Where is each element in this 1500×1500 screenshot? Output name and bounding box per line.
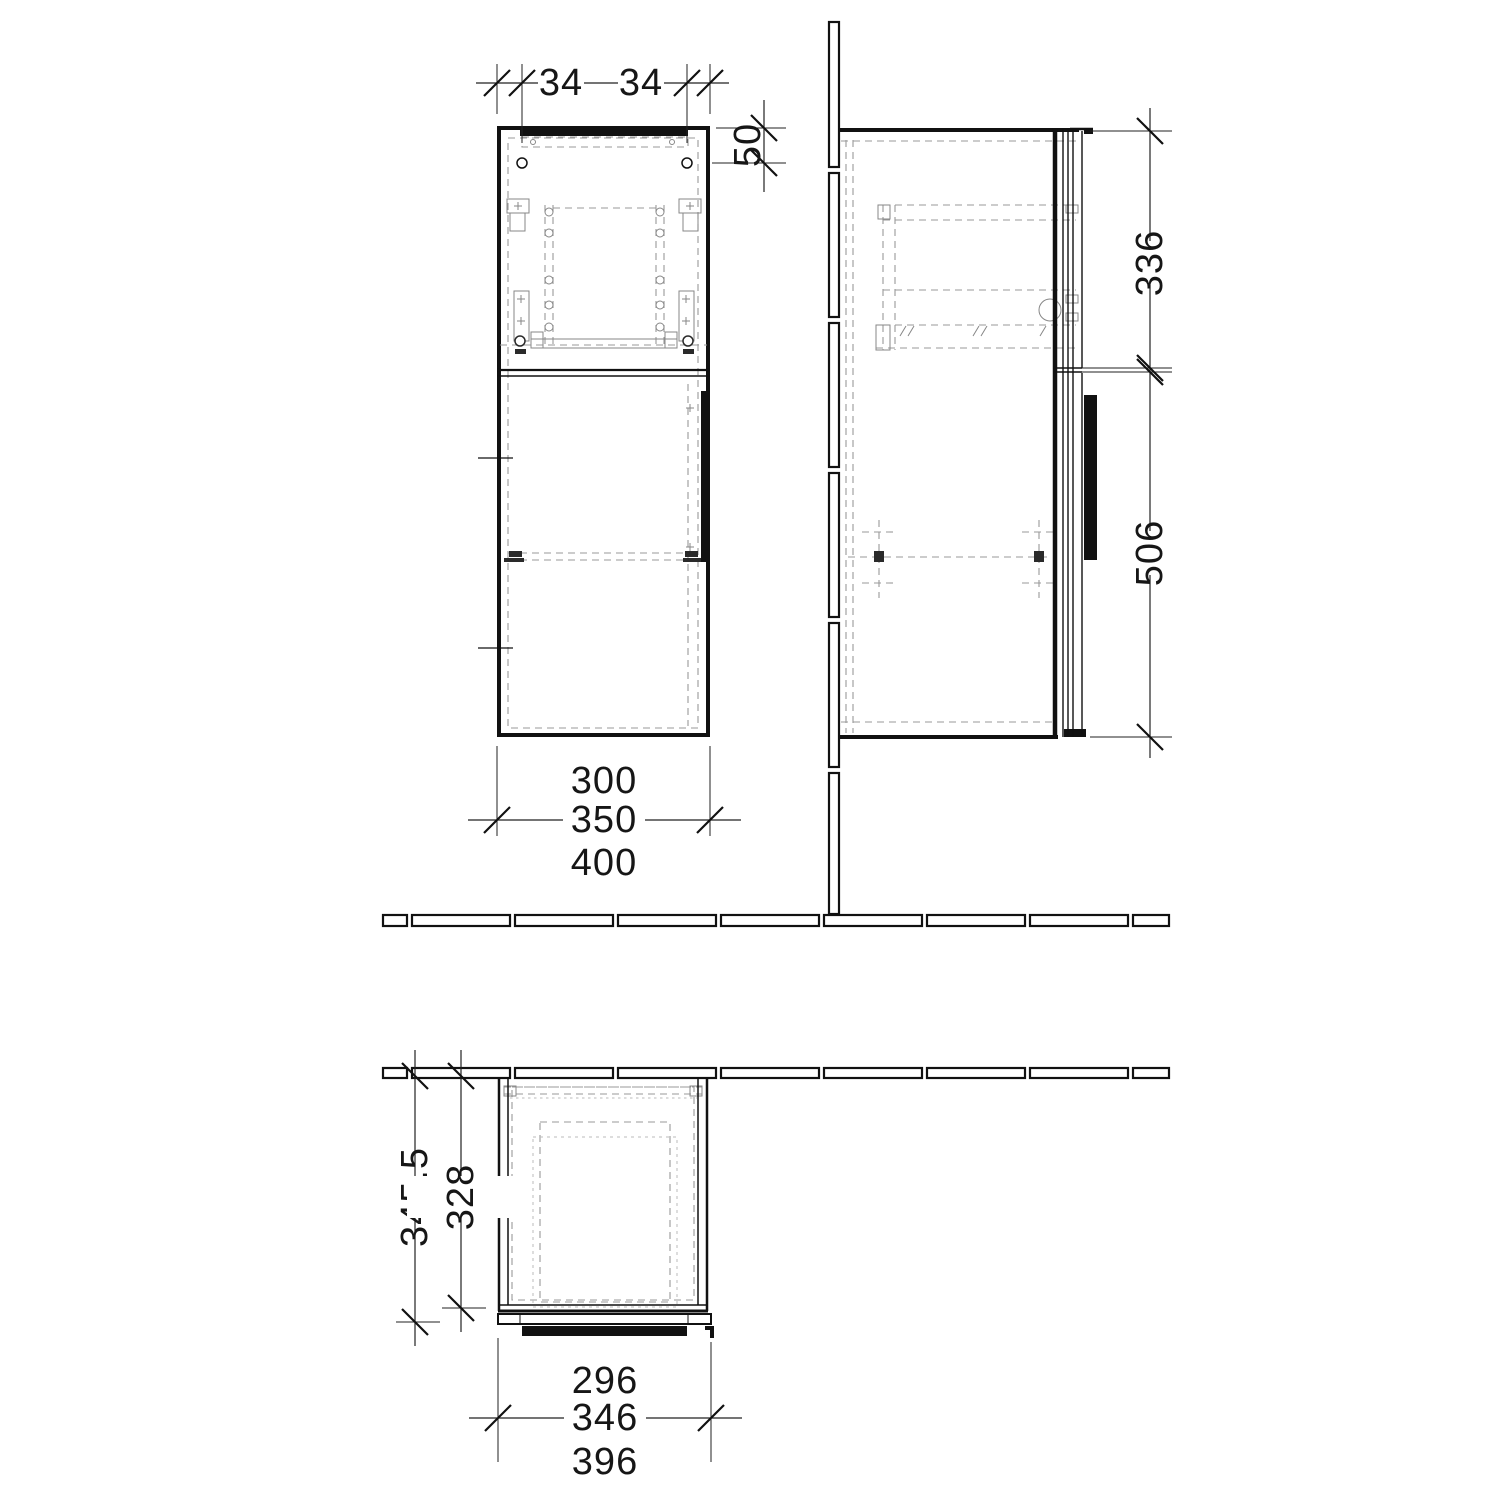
dim-front-width-body: 350	[571, 799, 637, 841]
layer-plan-door-panel	[498, 1314, 711, 1324]
dim-plan-width-inner: 296	[572, 1360, 638, 1402]
dim-front-rail-offset-right: 34	[619, 62, 663, 104]
technical-drawing-canvas: 343450300350400336506345.5328296346396	[0, 0, 1500, 1500]
dim-front-width-overall: 400	[571, 842, 637, 884]
dim-plan-width-body: 346	[572, 1397, 638, 1439]
dim-side-upper-height: 336	[1129, 230, 1171, 296]
dim-front-hole-offset: 50	[727, 123, 769, 167]
dim-plan-depth-body: 328	[440, 1164, 482, 1230]
cabinet-three-view-drawing: 343450300350400336506345.5328296346396	[0, 0, 1500, 1500]
dim-plan-width-overall: 396	[572, 1441, 638, 1483]
dim-front-width-inner: 300	[571, 760, 637, 802]
drawing-background	[0, 0, 1500, 1500]
dim-front-rail-offset-left: 34	[539, 62, 583, 104]
dim-side-door-height: 506	[1129, 520, 1171, 586]
layer-front-carcass	[499, 128, 708, 735]
